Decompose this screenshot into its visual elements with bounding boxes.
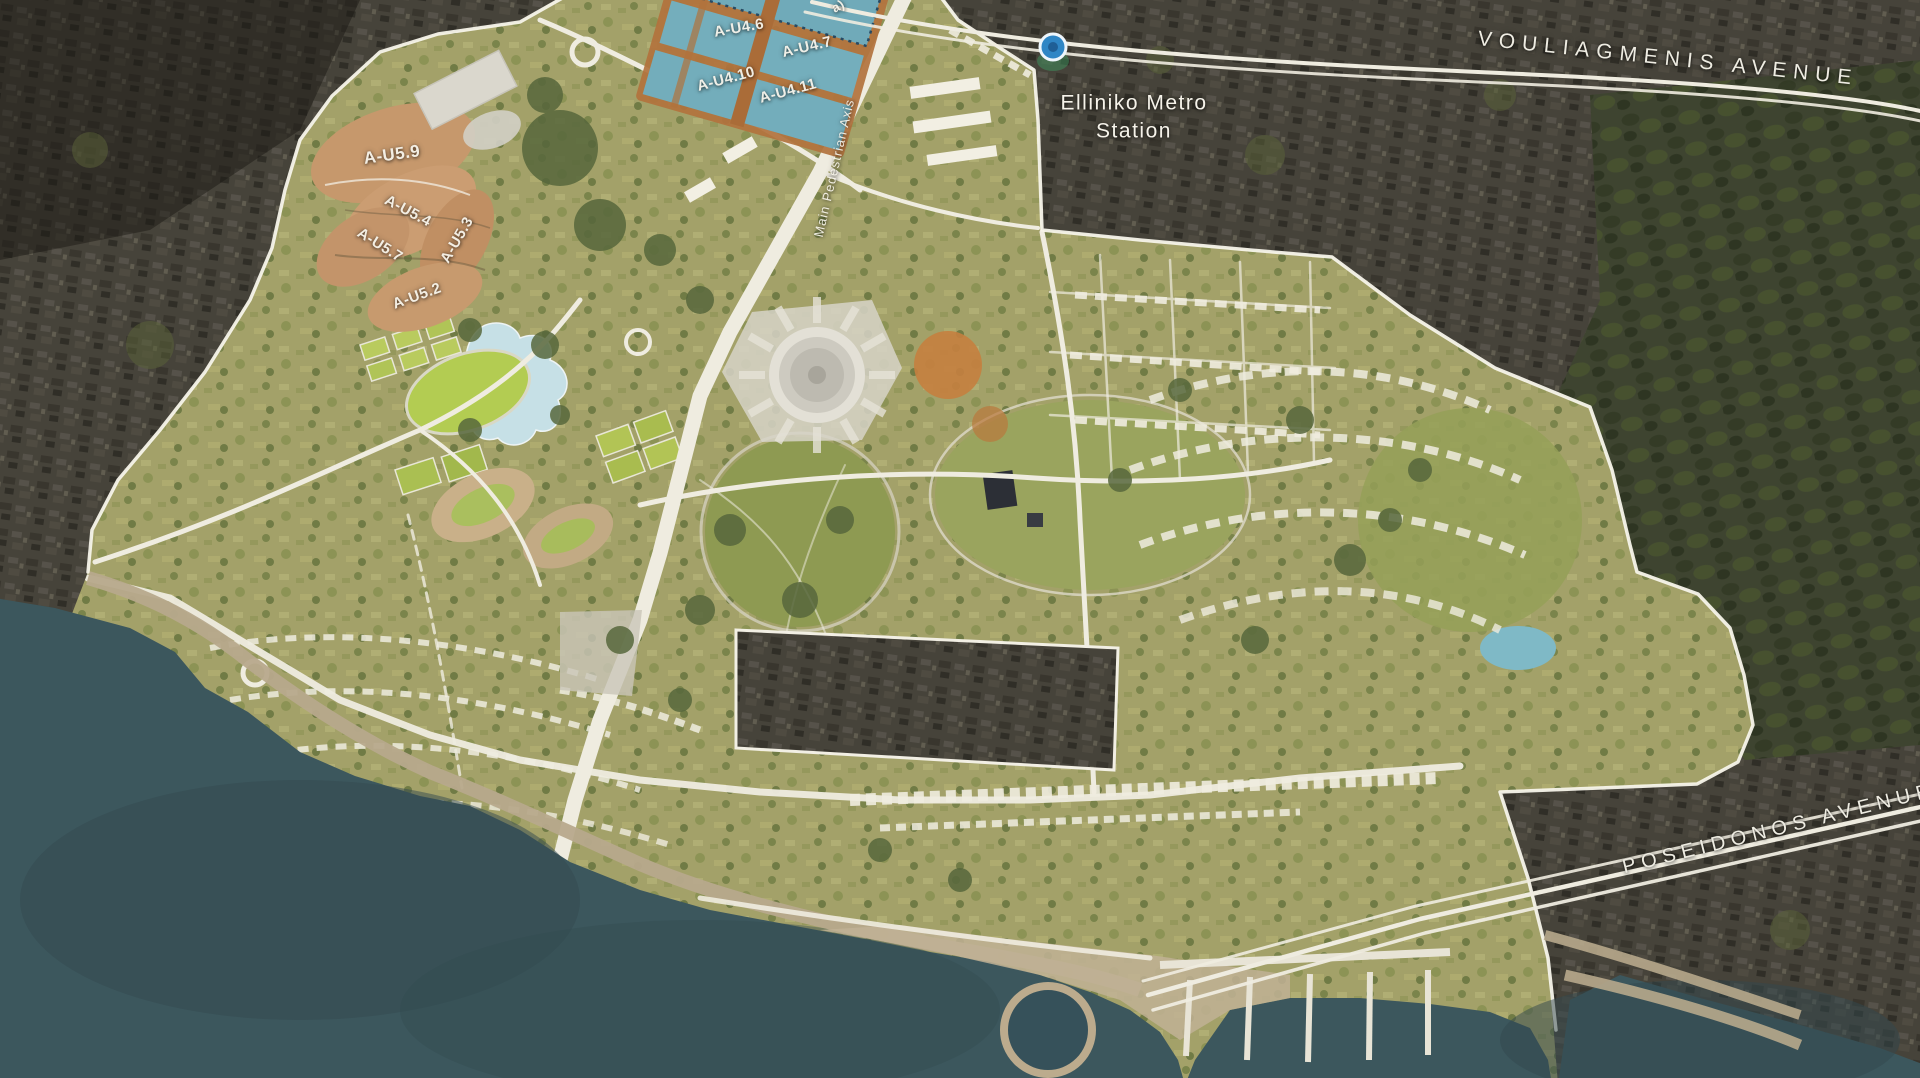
map-graphic — [0, 0, 1920, 1078]
metro-station-icon — [1037, 34, 1069, 71]
metro-station-label: Elliniko Metro Station — [1060, 89, 1207, 144]
metro-station-label-line1: Elliniko Metro — [1060, 89, 1207, 117]
excluded-city-block — [736, 630, 1118, 770]
masterplan-map: VOULIAGMENIS AVENUE POSEIDONOS AVENUE El… — [0, 0, 1920, 1078]
pond — [1480, 626, 1556, 670]
dark-building-2 — [1027, 513, 1043, 527]
plaza — [560, 610, 642, 696]
metro-station-label-line2: Station — [1060, 117, 1207, 145]
orange-canopy — [914, 331, 982, 399]
cove — [1004, 986, 1092, 1074]
